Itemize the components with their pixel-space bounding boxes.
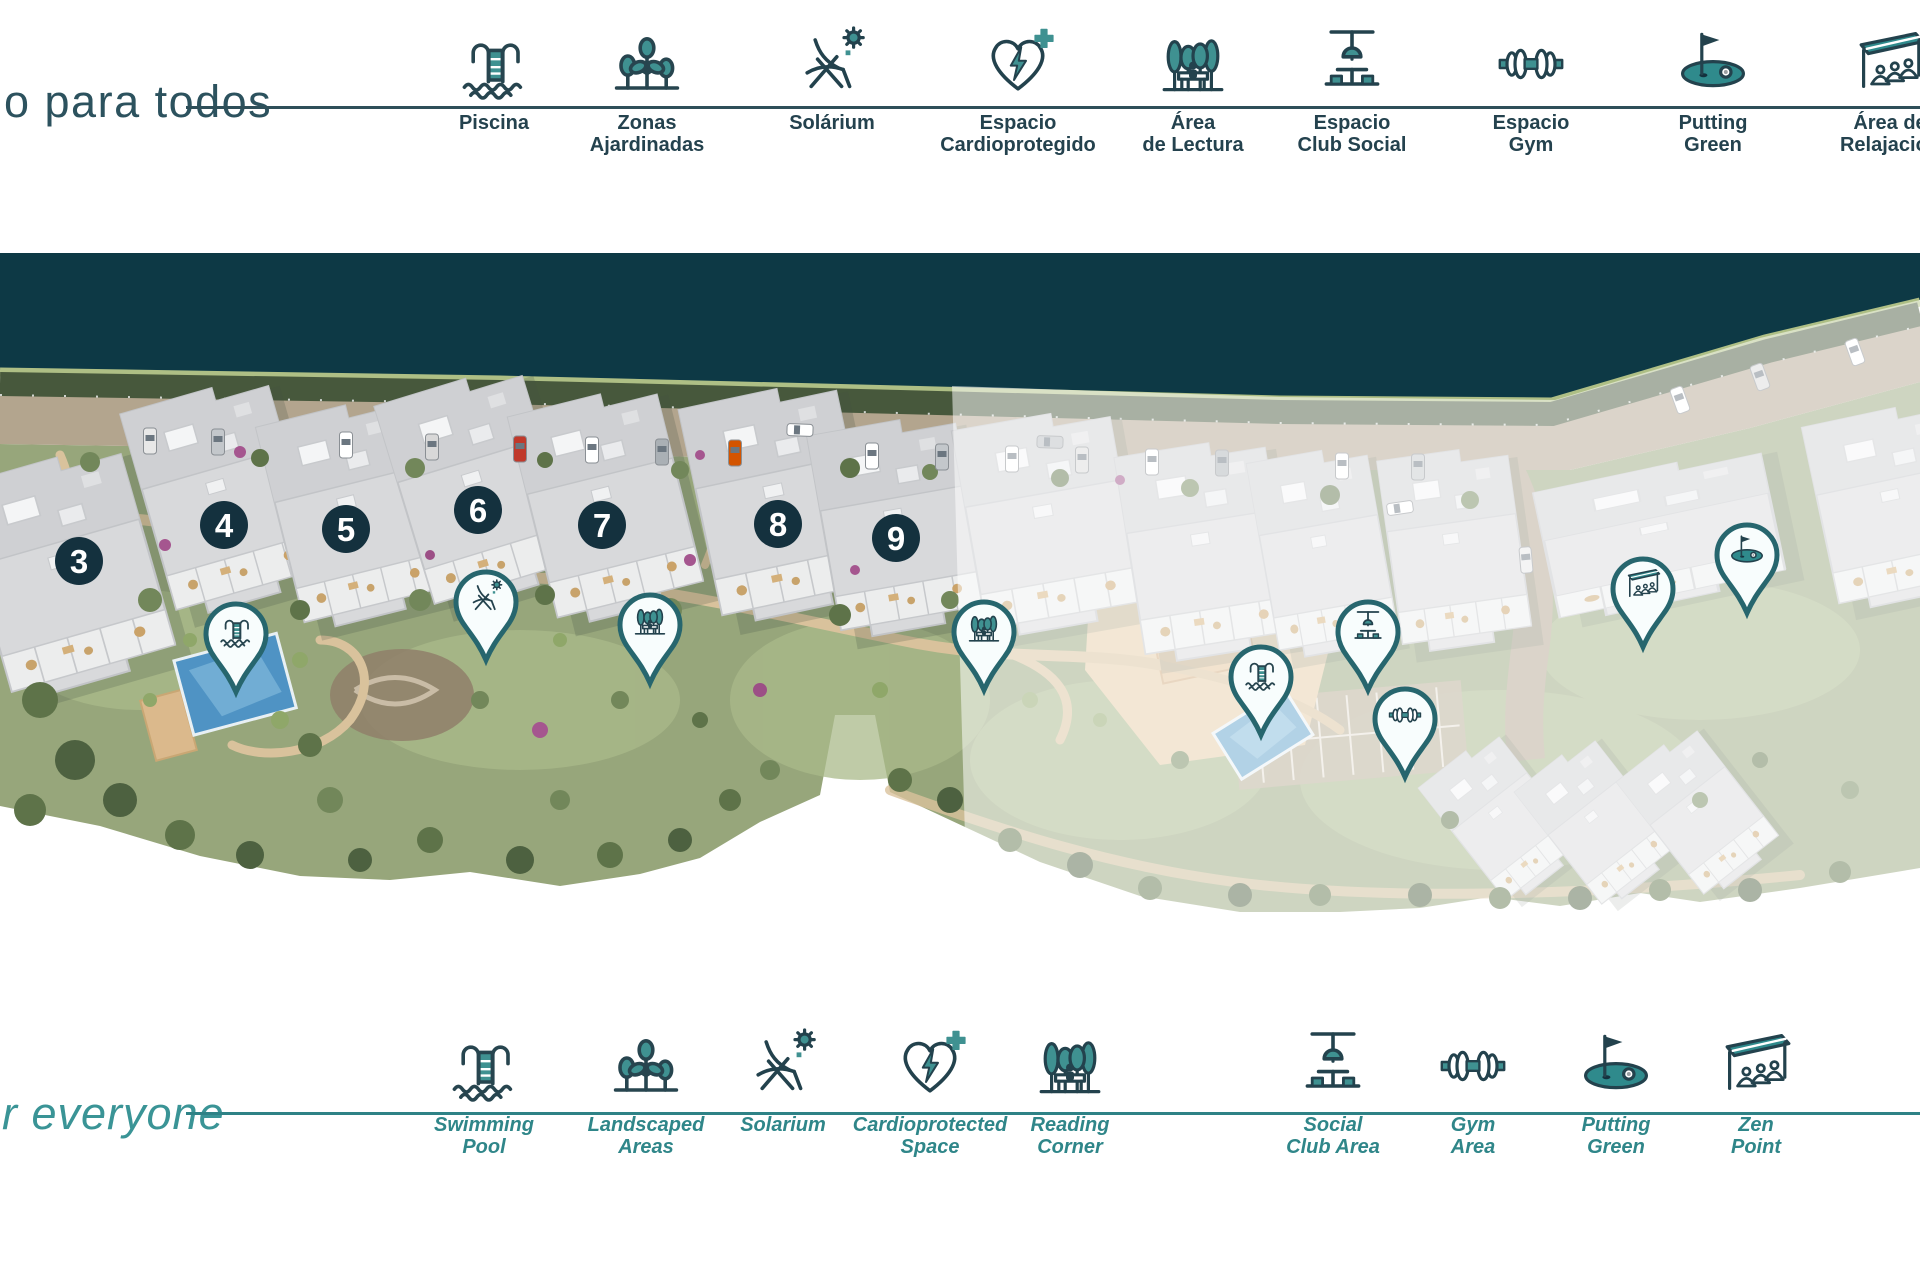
svg-text:4: 4 (215, 507, 234, 544)
tree (14, 794, 46, 826)
tree (695, 450, 705, 460)
legend-label: ReadingCorner (955, 1114, 1185, 1159)
legend-label: Área deRelajación (1775, 112, 1920, 157)
tree (760, 760, 780, 780)
svg-text:7: 7 (593, 507, 611, 544)
tree (684, 554, 696, 566)
tree (888, 768, 912, 792)
pool-icon (454, 24, 534, 104)
tree (597, 842, 623, 868)
car (144, 428, 157, 454)
tree (298, 733, 322, 757)
legend-item-zen: Área deRelajación (1775, 24, 1920, 157)
tree (138, 588, 162, 612)
legend-label: ZenPoint (1641, 1114, 1871, 1159)
legend-item-zen: ZenPoint (1641, 1026, 1871, 1159)
building-marker-9[interactable]: 9 (872, 514, 920, 562)
tree (251, 449, 269, 467)
tree (537, 452, 553, 468)
svg-text:9: 9 (887, 520, 905, 557)
pool-icon (444, 1026, 524, 1106)
zen-icon (1850, 24, 1920, 104)
tree (183, 633, 197, 647)
building-marker-4[interactable]: 4 (200, 501, 248, 549)
zen-icon (1716, 1026, 1796, 1106)
tree (290, 600, 310, 620)
reading-icon (1030, 1026, 1110, 1106)
car (212, 429, 225, 455)
svg-text:3: 3 (70, 543, 88, 580)
tree (668, 828, 692, 852)
solarium-icon (743, 1026, 823, 1106)
tree (22, 682, 58, 718)
tree (532, 722, 548, 738)
building-marker-8[interactable]: 8 (754, 500, 802, 548)
solarium-icon (792, 24, 872, 104)
svg-text:5: 5 (337, 511, 355, 548)
tree (236, 841, 264, 869)
reading-icon (1153, 24, 1233, 104)
tree (550, 790, 570, 810)
building-marker-3[interactable]: 3 (55, 537, 103, 585)
building-marker-6[interactable]: 6 (454, 486, 502, 534)
tree (937, 787, 963, 813)
legend-item-reading: ReadingCorner (955, 1026, 1185, 1159)
tree (55, 740, 95, 780)
tagline-spanish: o para todos (4, 76, 272, 128)
tree (103, 783, 137, 817)
tree (850, 565, 860, 575)
tree (80, 452, 100, 472)
svg-text:8: 8 (769, 506, 787, 543)
building-marker-7[interactable]: 7 (578, 501, 626, 549)
car (426, 434, 439, 460)
car (656, 439, 669, 465)
tree (317, 787, 343, 813)
tree (471, 691, 489, 709)
tree (872, 682, 888, 698)
car (729, 440, 742, 466)
car (936, 444, 949, 470)
car (866, 443, 879, 469)
tree (553, 633, 567, 647)
plants-icon (607, 24, 687, 104)
tree (348, 848, 372, 872)
tree (271, 711, 289, 729)
tree (719, 789, 741, 811)
tree (506, 846, 534, 874)
social-icon (1312, 24, 1392, 104)
site-plan-map[interactable]: 3456789 (0, 250, 1920, 1020)
tree (292, 652, 308, 668)
tree (840, 458, 860, 478)
tree (753, 683, 767, 697)
gym-icon (1491, 24, 1571, 104)
building-marker-5[interactable]: 5 (322, 505, 370, 553)
tree (405, 458, 425, 478)
car (514, 436, 527, 462)
tree (143, 693, 157, 707)
masterplan-page: o para todos PiscinaZonasAjardinadasSolá… (0, 0, 1920, 1280)
tree (671, 461, 689, 479)
tree (159, 539, 171, 551)
tree (829, 604, 851, 626)
svg-text:6: 6 (469, 492, 487, 529)
cardio-icon (978, 24, 1058, 104)
car (340, 432, 353, 458)
tree (165, 820, 195, 850)
tree (425, 550, 435, 560)
tree (535, 585, 555, 605)
tree (417, 827, 443, 853)
golf-icon (1673, 24, 1753, 104)
phase-fade-overlay (952, 300, 1920, 1010)
tree (409, 589, 431, 611)
car (787, 424, 813, 437)
tree (692, 712, 708, 728)
tree (234, 446, 246, 458)
tree (941, 591, 959, 609)
car (586, 437, 599, 463)
tree (611, 691, 629, 709)
